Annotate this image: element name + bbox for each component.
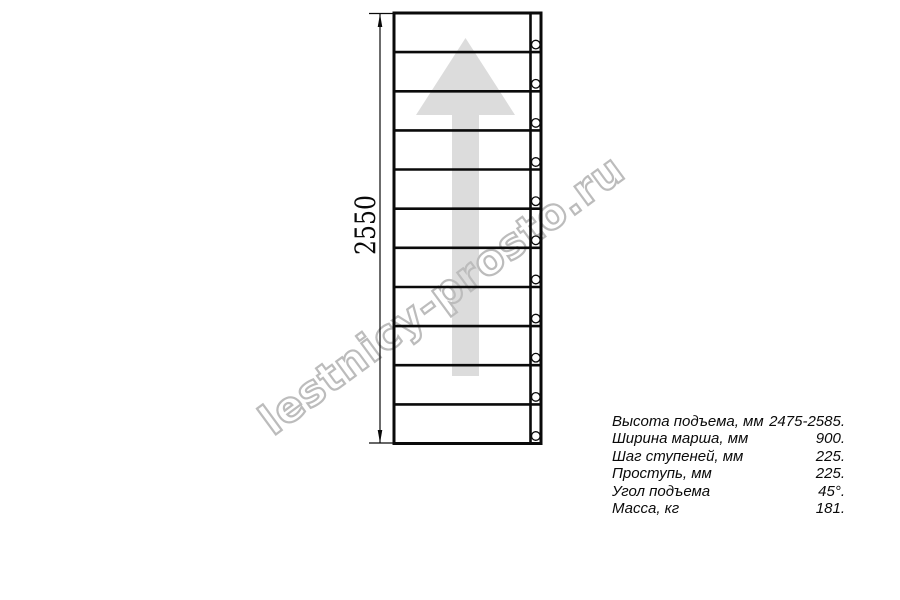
spec-row-ascent-angle: Угол подъема 45°. [612,483,845,500]
spec-row-step-pitch: Шаг ступеней, мм 225. [612,448,845,465]
spec-value: 225. [816,448,845,465]
spec-row-mass: Масса, кг 181. [612,500,845,517]
baluster-circle [532,80,541,89]
stair-outline [394,13,541,444]
spec-label: Ширина марша, мм [612,430,748,447]
dimension-arrowhead-top [378,14,383,27]
spec-value: 181. [816,500,845,517]
baluster-circle [532,119,541,128]
spec-value: 225. [816,465,845,482]
spec-row-height: Высота подъема, мм 2475-2585. [612,413,845,430]
baluster-circle [532,432,541,441]
spec-label: Высота подъема, мм [612,413,764,430]
baluster-circle [532,236,541,245]
spec-label: Проступь, мм [612,465,712,482]
canvas: lestnicy-prosto.ru 2550 Высота подъема, … [0,0,900,600]
spec-label: Угол подъема [612,483,710,500]
spec-label: Масса, кг [612,500,679,517]
spec-row-tread-depth: Проступь, мм 225. [612,465,845,482]
spec-label: Шаг ступеней, мм [612,448,743,465]
baluster-circle [532,393,541,402]
baluster-circle [532,353,541,362]
dimension-height-value: 2550 [349,195,382,255]
baluster-circle [532,275,541,284]
spec-row-flight-width: Ширина марша, мм 900. [612,430,845,447]
spec-value: 900. [816,430,845,447]
spec-value: 2475-2585. [769,413,845,430]
baluster-circle [532,158,541,167]
spec-value: 45°. [818,483,845,500]
tread-divider-lines [394,52,541,404]
baluster-circle [532,40,541,49]
baluster-circles [532,40,541,440]
baluster-circle [532,314,541,323]
baluster-circle [532,197,541,206]
dimension-arrowhead-bottom [378,430,383,443]
specs-table: Высота подъема, мм 2475-2585. Ширина мар… [612,413,845,517]
